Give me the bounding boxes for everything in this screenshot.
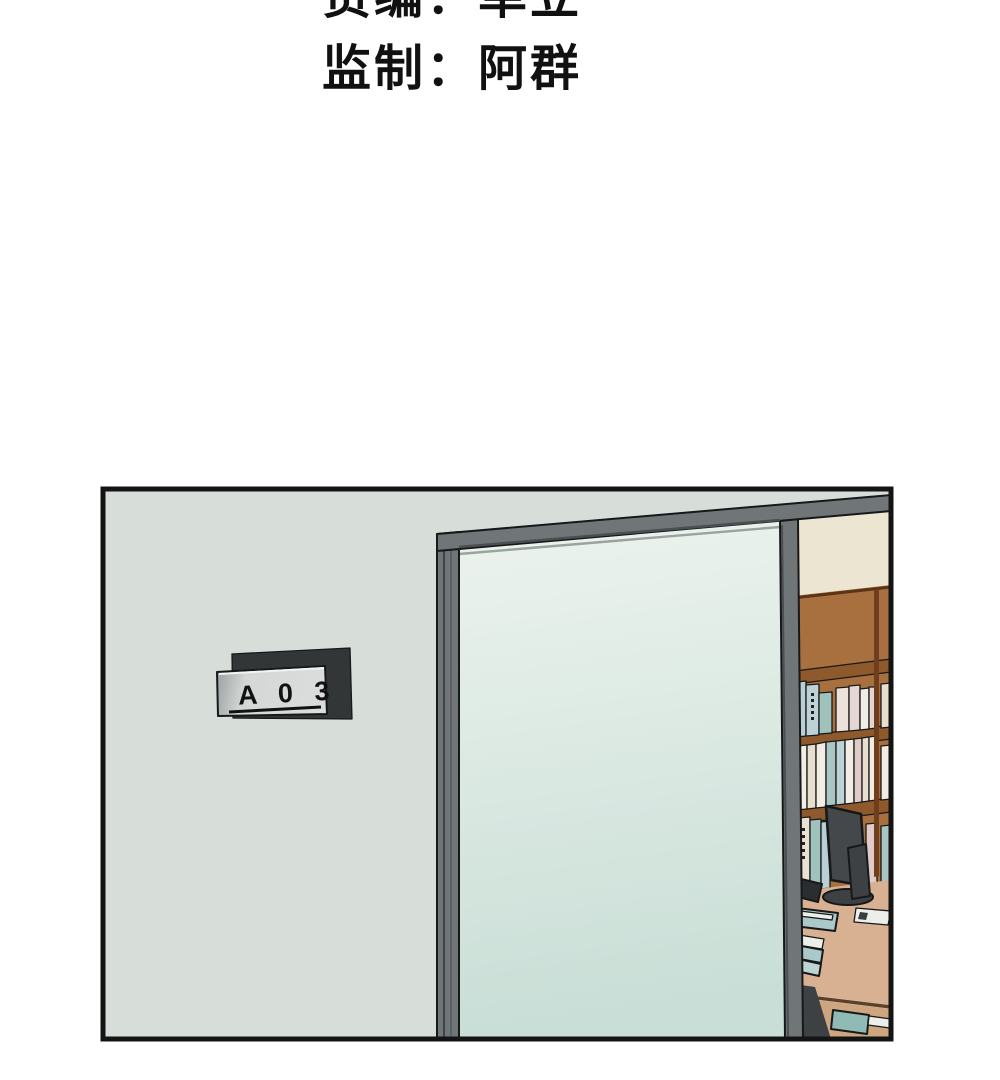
monitor-stand [848, 844, 870, 899]
book-spine-text [802, 835, 805, 838]
book-spine-text [802, 842, 805, 845]
book-spine-text [811, 693, 814, 696]
book-spine [819, 692, 832, 734]
book-spine [862, 737, 869, 802]
room-number-text: A 0 3 [237, 676, 337, 711]
comic-page: 责编：单立 监制：阿群 [0, 0, 1000, 1080]
door-sign: A 0 3 [217, 648, 352, 719]
comic-panel-illustration: A 0 3 [0, 0, 1000, 1080]
door-glass [459, 521, 801, 1039]
book-spine-text [802, 828, 805, 831]
book-spine-text [811, 699, 814, 702]
book-spine [849, 685, 860, 731]
book-spine [836, 740, 845, 805]
book-spine [845, 739, 854, 804]
book-spine [810, 819, 821, 890]
book-spine [826, 741, 836, 806]
book-spine-text [802, 849, 805, 852]
book-spine-text [811, 711, 814, 714]
book-spine [860, 688, 869, 730]
book-spine-text [811, 705, 814, 708]
book-spine-text [811, 717, 814, 720]
bookshelf-divider [874, 589, 879, 877]
door-left-frame [437, 532, 459, 1039]
book-spine [807, 744, 816, 809]
interior-wall [793, 511, 891, 596]
book-spine [806, 684, 819, 736]
book-spine [816, 742, 826, 808]
book-spine-text [802, 856, 805, 859]
book-spine [854, 738, 862, 803]
desk-drawer-front [831, 1010, 869, 1034]
book-spine [836, 687, 849, 732]
